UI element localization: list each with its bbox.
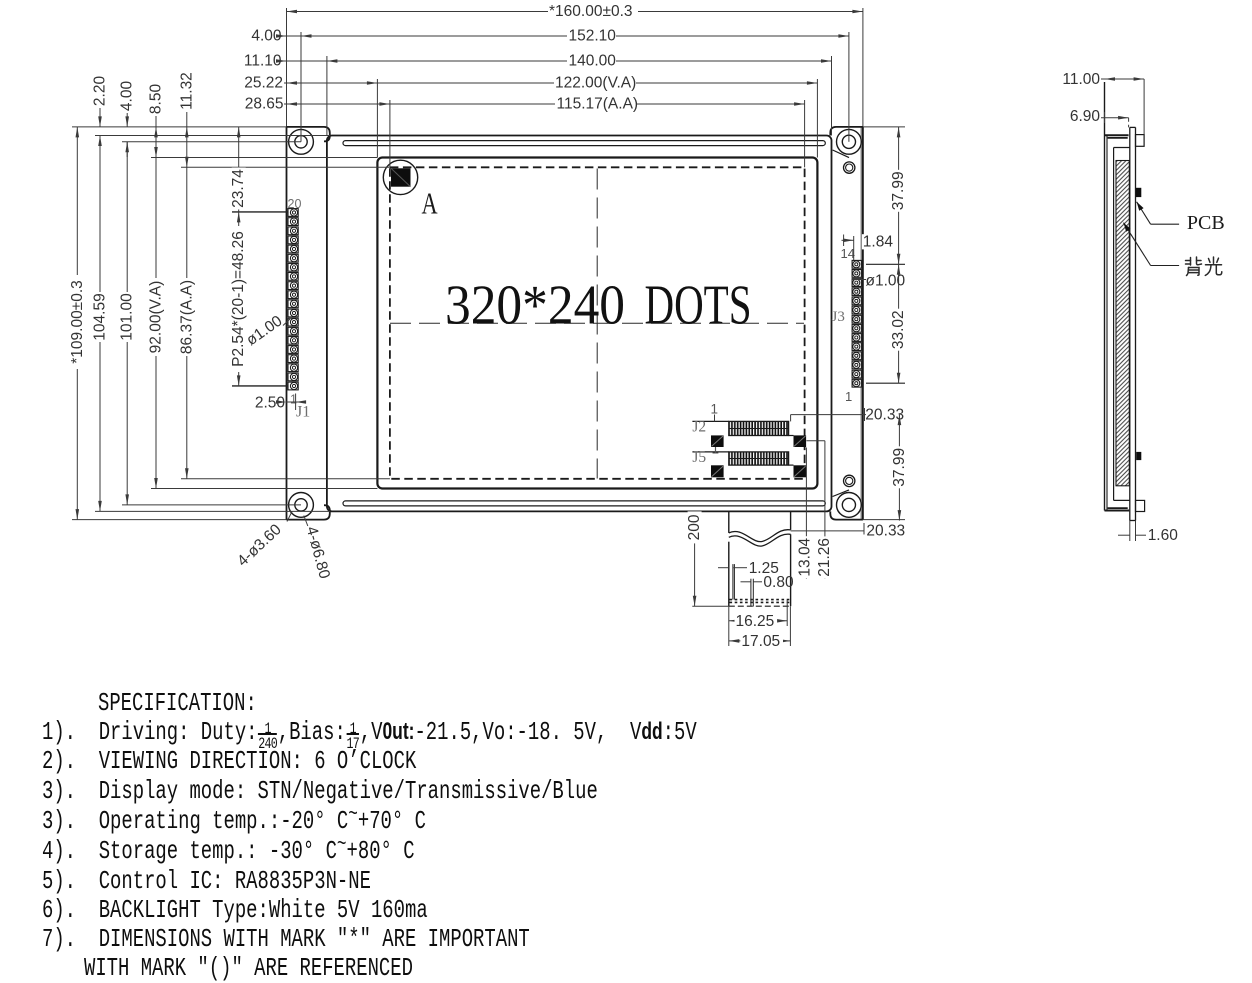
svg-text:152.10: 152.10	[569, 27, 617, 44]
svg-text:4-ø3.60: 4-ø3.60	[234, 521, 285, 570]
svg-text:37.99: 37.99	[890, 171, 907, 210]
svg-text:4.00: 4.00	[251, 27, 282, 44]
svg-text:J2: J2	[692, 419, 706, 436]
svg-text:14: 14	[841, 246, 855, 261]
svg-text:2.20: 2.20	[92, 76, 109, 107]
svg-text:DOTS: DOTS	[645, 275, 752, 337]
svg-text:200: 200	[686, 514, 703, 540]
svg-text:J5: J5	[692, 449, 706, 466]
svg-text:320*240: 320*240	[445, 275, 625, 337]
svg-text:*160.00±0.3: *160.00±0.3	[549, 3, 633, 20]
svg-text:20.33: 20.33	[865, 406, 904, 423]
svg-text:92.00(V.A): 92.00(V.A)	[148, 281, 165, 354]
svg-text:ø1.00: ø1.00	[243, 312, 286, 349]
svg-text:20: 20	[288, 197, 302, 211]
svg-text:11.00: 11.00	[1062, 71, 1100, 88]
svg-text:101.00: 101.00	[119, 293, 136, 341]
svg-text:16.25: 16.25	[736, 613, 775, 630]
svg-text:17.05: 17.05	[741, 633, 780, 650]
svg-text:28.65: 28.65	[245, 95, 284, 112]
svg-text:1: 1	[845, 389, 852, 404]
svg-text:122.00(V.A): 122.00(V.A)	[555, 74, 636, 91]
svg-text:20.33: 20.33	[866, 523, 905, 540]
svg-text:P2.54*(20-1)=48.26: P2.54*(20-1)=48.26	[230, 231, 247, 367]
svg-text:11.10: 11.10	[244, 52, 282, 69]
svg-text:6.90: 6.90	[1070, 108, 1101, 125]
svg-text:25.22: 25.22	[244, 74, 283, 91]
svg-text:J1: J1	[296, 404, 310, 421]
svg-text:33.02: 33.02	[890, 310, 907, 349]
svg-text:8.50: 8.50	[148, 84, 165, 115]
svg-text:1.60: 1.60	[1148, 527, 1179, 544]
svg-text:13.04: 13.04	[797, 537, 814, 576]
svg-text:86.37(A.A): 86.37(A.A)	[178, 280, 195, 354]
svg-text:21.26: 21.26	[816, 538, 833, 577]
svg-text:*109.00±0.3: *109.00±0.3	[69, 280, 86, 364]
svg-text:37.99: 37.99	[891, 448, 908, 487]
svg-text:PCB: PCB	[1187, 212, 1225, 234]
svg-text:23.74: 23.74	[230, 169, 247, 208]
svg-text:1.84: 1.84	[863, 233, 894, 250]
svg-text:2.50: 2.50	[255, 395, 286, 412]
svg-text:1: 1	[711, 402, 719, 417]
svg-text:4-ø6.80: 4-ø6.80	[303, 525, 333, 581]
svg-text:0.80: 0.80	[763, 574, 794, 591]
svg-text:140.00: 140.00	[569, 52, 617, 69]
svg-text:115.17(A.A): 115.17(A.A)	[557, 95, 639, 112]
svg-text:J3: J3	[832, 309, 845, 325]
svg-text:4.00: 4.00	[119, 81, 136, 112]
svg-text:ø1.00: ø1.00	[866, 272, 906, 289]
svg-text:A: A	[422, 186, 439, 220]
svg-text:104.59: 104.59	[92, 293, 109, 340]
svg-text:11.32: 11.32	[178, 72, 195, 110]
